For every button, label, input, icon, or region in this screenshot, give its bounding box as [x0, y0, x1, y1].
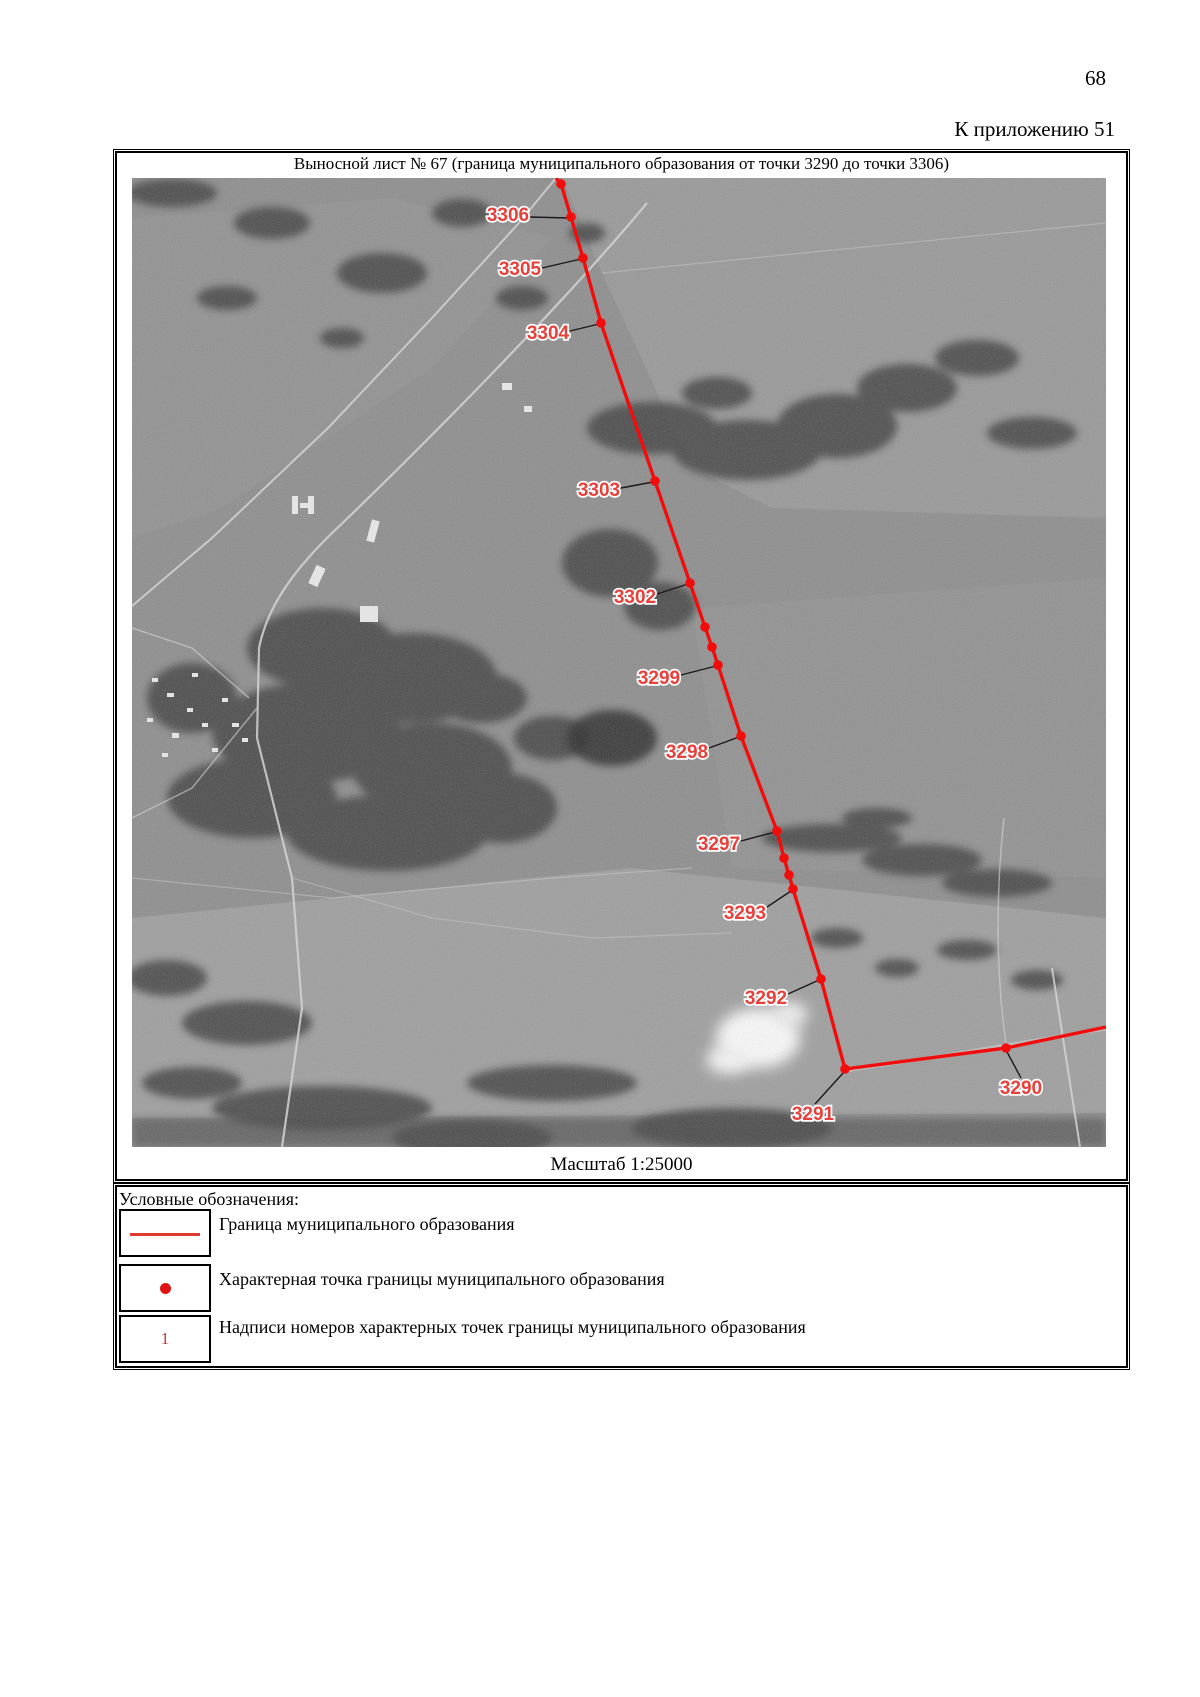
legend-number-symbol: 1: [121, 1329, 209, 1349]
map-title: Выносной лист № 67 (граница муниципально…: [114, 154, 1129, 174]
boundary-point-label-3293: 3293: [724, 903, 766, 924]
boundary-point-label-3306: 3306: [487, 205, 529, 226]
boundary-point: [736, 731, 746, 741]
legend-line-symbol: [130, 1233, 200, 1236]
legend-symbol-box-line: [119, 1209, 211, 1257]
boundary-point: [784, 870, 794, 880]
boundary-point: [1001, 1043, 1011, 1053]
boundary-point: [772, 826, 782, 836]
boundary-point: [566, 212, 576, 222]
legend-box: Условные обозначения: Граница муниципаль…: [113, 1183, 1130, 1370]
boundary-point-label-3305: 3305: [499, 259, 542, 280]
boundary-point: [596, 318, 606, 328]
legend-point-symbol: [160, 1283, 171, 1294]
boundary-point-label-3290: 3290: [1000, 1078, 1042, 1099]
legend-symbol-box-number: 1: [119, 1315, 211, 1363]
boundary-point-label-3304: 3304: [527, 323, 570, 344]
page-number: 68: [1085, 66, 1106, 91]
boundary-point: [685, 578, 695, 588]
appendix-note: К приложению 51: [954, 117, 1115, 142]
map-sheet-box: Выносной лист № 67 (граница муниципально…: [113, 149, 1130, 1183]
scale-label: Масштаб 1:25000: [114, 1154, 1129, 1176]
boundary-point: [788, 884, 798, 894]
legend-item-label: Надписи номеров характерных точек границ…: [219, 1317, 806, 1338]
legend-header: Условные обозначения:: [119, 1189, 299, 1210]
legend-item-label: Характерная точка границы муниципального…: [219, 1269, 665, 1290]
boundary-point: [840, 1064, 850, 1074]
boundary-point-label-3298: 3298: [666, 742, 708, 763]
boundary-point-label-3303: 3303: [578, 480, 620, 501]
satellite-image: 3306330533043303330232993298329732933292…: [132, 178, 1106, 1147]
legend-item-label: Граница муниципального образования: [219, 1214, 515, 1235]
boundary-point: [556, 179, 566, 189]
document-page: 68 К приложению 51 Выносной лист № 67 (г…: [0, 0, 1200, 1697]
satellite-map: 3306330533043303330232993298329732933292…: [132, 178, 1106, 1147]
boundary-point: [779, 853, 789, 863]
boundary-point: [707, 642, 717, 652]
boundary-point-label-3292: 3292: [745, 988, 787, 1009]
boundary-point-label-3299: 3299: [638, 668, 680, 689]
boundary-point: [700, 622, 710, 632]
legend-symbol-box-point: [119, 1264, 211, 1312]
boundary-point-label-3291: 3291: [792, 1104, 835, 1125]
boundary-point: [650, 476, 660, 486]
boundary-point: [713, 660, 723, 670]
boundary-point: [816, 974, 826, 984]
boundary-point-label-3297: 3297: [698, 834, 740, 855]
label-leader-line: [530, 217, 569, 218]
boundary-point: [578, 253, 588, 263]
boundary-point-label-3302: 3302: [614, 587, 656, 608]
